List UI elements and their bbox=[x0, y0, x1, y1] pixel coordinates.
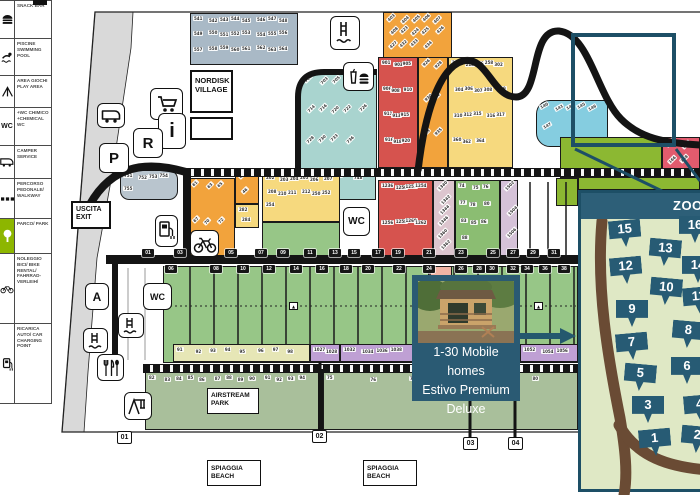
pitch-number-01: 01 bbox=[142, 249, 154, 257]
nordisk-village-label: NORDISK VILLAGE bbox=[190, 70, 233, 113]
snack-bar-icon bbox=[348, 68, 370, 86]
plot-number-tag: 1256 bbox=[381, 220, 394, 225]
wc-label: WC bbox=[150, 292, 165, 302]
zone-orange-top: 4034044054064074084234244254264274324334… bbox=[383, 12, 452, 58]
airstream-park-label: AIRSTREAM PARK bbox=[207, 388, 259, 414]
plot-number-tag: 559 bbox=[219, 45, 229, 50]
zone-purple-strip-1: 10271028 bbox=[310, 344, 340, 362]
plot-number-tag: 82 bbox=[148, 375, 156, 380]
plot-number-tag: 552 bbox=[230, 31, 240, 36]
pitch-number-14: 14 bbox=[290, 265, 302, 273]
park-icon bbox=[0, 219, 15, 253]
snack-bar-icon bbox=[0, 1, 15, 38]
pitch-number-11: 11 bbox=[304, 249, 316, 257]
plot-number-tag: 86 bbox=[480, 219, 488, 224]
plot-number-tag: 87 bbox=[214, 376, 222, 381]
plot-number-tag: 63 bbox=[205, 181, 214, 190]
wc-poi-2: WC bbox=[143, 283, 172, 310]
plot-number-tag: 80 bbox=[483, 201, 491, 206]
plot-number-tag: 755 bbox=[123, 186, 133, 191]
pitch-number-16: 16 bbox=[316, 265, 328, 273]
legend-row: PARCO/ PARK bbox=[0, 219, 51, 254]
chemical-wc-icon: WC bbox=[0, 108, 15, 145]
plot-number-tag: 546 bbox=[256, 17, 266, 22]
mobile-home-info-card: 1-30 Mobile homes Estivo Premium Deluxe bbox=[412, 275, 520, 401]
legend-row: PISCINE SWIMMING POOL bbox=[0, 39, 51, 76]
plot-number-tag: 403 bbox=[386, 12, 397, 23]
zone-red-upper: 901903905906908910911913915916918920 bbox=[378, 57, 418, 168]
plot-number-tag: 92 bbox=[195, 349, 203, 354]
plot-number-tag: 88 bbox=[461, 235, 469, 240]
plot-number-tag: 406 bbox=[421, 12, 432, 23]
plot-number-tag: 754 bbox=[159, 173, 169, 178]
bike-rental-poi bbox=[190, 230, 219, 257]
plot-number-tag: 1254 bbox=[414, 183, 427, 188]
mobile-home-photo bbox=[418, 281, 514, 343]
empty-building-box bbox=[190, 117, 233, 140]
zone-brightgreen-strip bbox=[578, 177, 700, 190]
zone-purple-strip-3: 105210541056 bbox=[520, 344, 578, 362]
plot-number-tag: 360 bbox=[452, 137, 462, 142]
pitch-number-23: 23 bbox=[455, 249, 467, 257]
plot-number-tag: 166 bbox=[667, 154, 678, 165]
parking-label: P bbox=[109, 150, 119, 167]
plot-number-tag: 61 bbox=[190, 179, 199, 188]
card-line-1: 1-30 Mobile homes bbox=[418, 343, 514, 381]
plot-number-tag: 554 bbox=[256, 32, 266, 37]
plot-number-tag: 91 bbox=[176, 347, 184, 352]
plot-number-tag: 714 bbox=[306, 103, 317, 114]
pool-poi-mid bbox=[118, 313, 144, 338]
area-a-label: A bbox=[93, 290, 102, 304]
pitch-number-38: 38 bbox=[558, 265, 570, 273]
plot-number-tag: 931 bbox=[431, 91, 442, 102]
plot-number-tag: 75 bbox=[472, 185, 480, 190]
pitch-number-07: 07 bbox=[255, 249, 267, 257]
inset-title: ZOOM bbox=[673, 198, 700, 213]
plot-number-tag: 563 bbox=[267, 47, 277, 52]
plot-number-tag: 730 bbox=[317, 133, 328, 144]
plot-number-tag: 250 bbox=[311, 191, 321, 196]
plot-number-tag: 284 bbox=[241, 217, 251, 222]
walkway-marker: ▲ bbox=[289, 302, 298, 310]
pitch-number-34: 34 bbox=[521, 265, 533, 273]
uscita-exit-label: USCITA EXIT bbox=[71, 201, 111, 229]
plot-number-tag: 703 bbox=[319, 75, 330, 86]
zone-mauve-strip-1: 134013421344134613601362 bbox=[433, 180, 455, 258]
pitch-number-19: 19 bbox=[392, 249, 404, 257]
zone-red-lower: 12361250125212541256125812601262 bbox=[378, 180, 433, 258]
bike-rental-icon bbox=[0, 254, 15, 323]
plot-number-tag: 432 bbox=[398, 38, 409, 49]
car-charging-icon bbox=[0, 324, 15, 403]
plot-number-tag: 77 bbox=[459, 200, 467, 205]
plot-number-tag: 541 bbox=[193, 16, 203, 21]
plot-number-tag: 86 bbox=[198, 377, 206, 382]
plot-number-tag: 1056 bbox=[556, 348, 569, 353]
plot-number-tag: 701 bbox=[303, 73, 314, 84]
restaurant-poi bbox=[97, 354, 124, 381]
pitch-number-26: 26 bbox=[455, 265, 467, 273]
plot-number-tag: 425 bbox=[420, 25, 431, 36]
plot-number-tag: 548 bbox=[278, 18, 288, 23]
wc-label: WC bbox=[348, 216, 365, 227]
bike-icon bbox=[193, 235, 217, 253]
plot-number-tag: 722 bbox=[342, 103, 353, 114]
pitch-number-29: 29 bbox=[527, 249, 539, 257]
pitch-number-20: 20 bbox=[362, 265, 374, 273]
plot-number-tag: 216 bbox=[451, 60, 461, 65]
pitch-number-08: 08 bbox=[210, 265, 222, 273]
zone-green-mid: 74757677788083858688 bbox=[455, 180, 500, 258]
plot-number-tag: 147 bbox=[541, 121, 552, 131]
ev-charging-poi bbox=[155, 215, 178, 247]
plot-number-tag: 423 bbox=[399, 24, 410, 35]
plot-number-tag: 560 bbox=[230, 47, 240, 52]
plot-number-tag: 557 bbox=[193, 47, 203, 52]
plot-number-tag: 93 bbox=[287, 376, 295, 381]
pitch-number-36: 36 bbox=[539, 265, 551, 273]
plot-number-tag: 736 bbox=[345, 134, 356, 145]
plot-number-tag: 141 bbox=[553, 103, 564, 113]
pitch-number-09: 09 bbox=[277, 249, 289, 257]
plot-number-tag: 304 bbox=[454, 87, 464, 92]
legend-label: RICARICA AUTO/ CAR CHARGING POINT bbox=[15, 324, 51, 403]
plot-number-tag: 140 bbox=[538, 101, 549, 111]
road-marker-04: 04 bbox=[508, 437, 523, 450]
plot-number-tag: 252 bbox=[321, 190, 331, 195]
railway-road-top bbox=[184, 168, 700, 177]
legend-label: +WC CHIMICO +CHEMICAL WC bbox=[15, 108, 51, 145]
plot-number-tag: 716 bbox=[318, 102, 329, 113]
plot-number-tag: 212 bbox=[301, 189, 311, 194]
zone-paleyellow-strip: 9192939495969798 bbox=[173, 344, 310, 362]
plot-number-tag: 70 bbox=[202, 217, 211, 226]
plot-number-tag: 317 bbox=[495, 112, 505, 117]
shopping-cart-icon bbox=[156, 93, 178, 115]
pool-ladder-icon bbox=[122, 317, 140, 335]
info-icon: i bbox=[169, 120, 175, 143]
beach-label-1: SPIAGGIA BEACH bbox=[207, 460, 261, 486]
plot-number-tag: 309 bbox=[496, 86, 506, 91]
plot-number-tag: 94 bbox=[224, 347, 232, 352]
plot-number-tag: 85 bbox=[187, 375, 195, 380]
plot-number-tag: 1262 bbox=[414, 220, 427, 225]
plot-number-tag: 67 bbox=[191, 215, 200, 224]
plot-number-tag: 705 bbox=[331, 74, 342, 85]
pitch-number-12: 12 bbox=[263, 265, 275, 273]
zoom-source-rectangle bbox=[571, 33, 676, 147]
zone-mauve-strip-2: 150215041506 bbox=[500, 180, 518, 258]
plot-number-tag: 1054 bbox=[541, 349, 554, 354]
plot-number-tag: 556 bbox=[278, 30, 288, 35]
plot-number-tag: 908 bbox=[390, 88, 400, 93]
plot-number-tag: 307 bbox=[473, 88, 483, 93]
plot-number-tag: 1362 bbox=[439, 238, 452, 251]
walkway-icon bbox=[0, 179, 15, 218]
pitch-number-27: 27 bbox=[507, 249, 519, 257]
plot-number-tag: 254 bbox=[265, 202, 275, 207]
plot-number-tag: 407 bbox=[431, 14, 442, 25]
legend-label: CAMPER SERVICE bbox=[15, 146, 51, 178]
plot-number-tag: 910 bbox=[403, 87, 413, 92]
reception-label: R bbox=[143, 135, 154, 152]
pitch-number-15: 15 bbox=[348, 249, 360, 257]
plot-number-tag: 92 bbox=[275, 377, 283, 382]
plot-number-tag: 315 bbox=[472, 111, 482, 116]
plot-number-tag: 543 bbox=[219, 17, 229, 22]
plot-number-tag: 203 bbox=[279, 177, 289, 182]
plot-number-tag: 1036 bbox=[376, 348, 389, 353]
plot-number-tag: 1340 bbox=[436, 179, 449, 192]
pitch-number-05: 05 bbox=[225, 249, 237, 257]
plot-number-tag: 93 bbox=[209, 348, 217, 353]
pitch-number-21: 21 bbox=[423, 249, 435, 257]
playground-poi bbox=[124, 392, 152, 420]
plot-number-tag: 65 bbox=[216, 180, 225, 189]
pitch-number-06: 06 bbox=[165, 265, 177, 273]
plot-number-tag: 211 bbox=[287, 190, 297, 195]
plot-number-tag: 1504 bbox=[506, 204, 519, 217]
zone-yellow-main: 2162182562583023043063073083093103123153… bbox=[448, 57, 513, 168]
plot-number-tag: 208 bbox=[267, 189, 277, 194]
plot-number-tag: 1502 bbox=[503, 179, 516, 192]
plot-number-tag: 561 bbox=[241, 46, 251, 51]
plot-number-tag: 426 bbox=[434, 24, 445, 35]
card-line-3: Deluxe bbox=[418, 400, 514, 419]
legend-label: PISCINE SWIMMING POOL bbox=[15, 39, 51, 75]
road-marker-03: 03 bbox=[463, 437, 478, 450]
zone-slate-top: 5415425435445455465475485495505515525535… bbox=[190, 13, 298, 65]
pitch-number-10: 10 bbox=[237, 265, 249, 273]
pitch-number-22: 22 bbox=[393, 265, 405, 273]
plot-number-tag: 310 bbox=[453, 113, 463, 118]
pitch-number-31: 31 bbox=[548, 249, 560, 257]
plot-number-tag: 935 bbox=[433, 126, 444, 137]
zoom-inset-panel: ZOOM 15161312141011987654321 bbox=[578, 190, 700, 492]
plot-number-tag: 80 bbox=[532, 376, 540, 381]
plot-number-tag: 720 bbox=[330, 104, 341, 115]
pitch-number-13: 13 bbox=[329, 249, 341, 257]
pool-ladder-icon bbox=[335, 20, 355, 46]
legend-row: CAMPER SERVICE bbox=[0, 146, 51, 179]
plot-number-tag: 72 bbox=[217, 216, 226, 225]
legend-label: SNACK BAR bbox=[15, 1, 51, 38]
legend-label: PARCO/ PARK bbox=[15, 219, 51, 253]
legend-row: RICARICA AUTO/ CAR CHARGING POINT bbox=[0, 324, 51, 403]
plot-number-tag: 728 bbox=[305, 134, 316, 145]
legend-row: AREA GIOCHI PLAY AREA bbox=[0, 76, 51, 108]
swing-icon bbox=[127, 396, 149, 416]
plot-number-tag: 933 bbox=[421, 127, 432, 138]
plot-number-tag: 753 bbox=[148, 174, 158, 179]
beach-label-2: SPIAGGIA BEACH bbox=[363, 460, 417, 486]
restaurant-cutlery-icon bbox=[102, 358, 120, 378]
plot-number-tag: 210 bbox=[277, 191, 287, 196]
plot-number-tag: 733 bbox=[329, 132, 340, 143]
plot-number-tag: 75 bbox=[326, 375, 334, 380]
snack-bar-poi bbox=[343, 62, 374, 91]
legend-label: NOLEGGIO BICI/ BIKE RENTAL/ FAHRRAD- VER… bbox=[15, 254, 51, 323]
plot-number-tag: 434 bbox=[423, 39, 434, 50]
plot-number-tag: 545 bbox=[241, 18, 251, 23]
plot-number-tag: 1052 bbox=[523, 347, 536, 352]
plot-number-tag: 96 bbox=[257, 348, 265, 353]
pitch-number-30: 30 bbox=[486, 265, 498, 273]
plot-number-tag: 95 bbox=[239, 349, 247, 354]
plot-number-tag: 91 bbox=[264, 375, 272, 380]
plot-number-tag: 256 bbox=[474, 61, 484, 66]
parking-poi: P bbox=[99, 143, 129, 173]
vertical-road-left bbox=[112, 264, 118, 354]
plot-number-tag: 168 bbox=[679, 153, 690, 164]
pool-ladder-icon bbox=[87, 332, 105, 350]
plot-number-tag: 206 bbox=[309, 177, 319, 182]
pitch-number-32: 32 bbox=[507, 265, 519, 273]
plot-number-tag: 555 bbox=[267, 31, 277, 36]
pitch-number-03: 03 bbox=[174, 249, 186, 257]
wc-poi-1: WC bbox=[343, 207, 370, 236]
plot-number-tag: 1028 bbox=[325, 349, 338, 354]
camper-poi bbox=[97, 103, 125, 128]
road-marker-01: 01 bbox=[117, 431, 132, 444]
plot-number-tag: 74 bbox=[458, 183, 466, 188]
pitch-number-18: 18 bbox=[340, 265, 352, 273]
plot-number-tag: 164 bbox=[681, 139, 692, 150]
card-line-2: Estivo Premium bbox=[418, 381, 514, 400]
zone-brightgreen-sliver bbox=[556, 178, 578, 206]
plot-number-tag: 751 bbox=[123, 173, 133, 178]
pitch-number-28: 28 bbox=[473, 265, 485, 273]
area-a-poi: A bbox=[85, 283, 109, 310]
plot-number-tag: 926 bbox=[421, 57, 432, 68]
plot-number-tag: 1032 bbox=[343, 347, 356, 352]
plot-number-tag: 433 bbox=[409, 37, 420, 48]
legend-table: SNACK BARPISCINE SWIMMING POOLAREA GIOCH… bbox=[0, 0, 52, 404]
plot-number-tag: 551 bbox=[219, 32, 229, 37]
plot-number-tag: 1346 bbox=[437, 214, 450, 227]
plot-number-tag: 84 bbox=[175, 376, 183, 381]
plot-number-tag: 83 bbox=[460, 218, 468, 223]
plot-number-tag: 542 bbox=[208, 18, 218, 23]
pitch-number-25: 25 bbox=[487, 249, 499, 257]
legend-label: PERCORSO PEDONALE/ WALKWAY bbox=[15, 179, 51, 218]
plot-number-tag: 549 bbox=[193, 31, 203, 36]
inset-header: ZOOM bbox=[581, 193, 700, 219]
plot-number-tag: 564 bbox=[278, 46, 288, 51]
pitch-number-24: 24 bbox=[423, 265, 435, 273]
plot-number-tag: 83 bbox=[164, 377, 172, 382]
plot-number-tag: 302 bbox=[493, 62, 503, 67]
plot-number-tag: 94 bbox=[298, 375, 306, 380]
plot-number-tag: 76 bbox=[482, 184, 490, 189]
walkway-marker: ▲ bbox=[534, 302, 543, 310]
plot-number-tag: 915 bbox=[400, 112, 410, 117]
plot-number-tag: 901 bbox=[381, 60, 391, 65]
plot-number-tag: 308 bbox=[483, 87, 493, 92]
plot-number-tag: 364 bbox=[475, 138, 485, 143]
zone-slate-blob: 751752753754755 bbox=[120, 170, 178, 200]
camper-service-icon bbox=[0, 146, 15, 178]
plot-number-tag: 726 bbox=[358, 102, 369, 113]
plot-number-tag: 752 bbox=[138, 175, 148, 180]
plot-number-tag: 1034 bbox=[361, 349, 374, 354]
legend-row: NOLEGGIO BICI/ BIKE RENTAL/ FAHRRAD- VER… bbox=[0, 254, 51, 324]
pitch-number-17: 17 bbox=[372, 249, 384, 257]
zone-yellow-small: 282284 bbox=[235, 204, 259, 228]
plot-number-tag: 905 bbox=[402, 61, 412, 66]
plot-number-tag: 1038 bbox=[390, 347, 403, 352]
cut-marker bbox=[33, 0, 47, 5]
plot-number-tag: 1506 bbox=[505, 226, 518, 239]
legend-row: PERCORSO PEDONALE/ WALKWAY bbox=[0, 179, 51, 219]
road-marker-02: 02 bbox=[312, 430, 327, 443]
pool-poi-left bbox=[83, 328, 108, 353]
camper-icon bbox=[101, 108, 121, 124]
plot-number-tag: 562 bbox=[256, 45, 266, 50]
plot-number-tag: 98 bbox=[286, 349, 294, 354]
plot-number-tag: 97 bbox=[272, 347, 280, 352]
legend-row: WC+WC CHIMICO +CHEMICAL WC bbox=[0, 108, 51, 146]
plot-number-tag: 76 bbox=[370, 377, 378, 382]
ev-charging-icon bbox=[158, 219, 175, 243]
zone-purple-strip-2: 1032103410361038 bbox=[340, 344, 413, 362]
plot-number-tag: 920 bbox=[401, 138, 411, 143]
plot-number-tag: 550 bbox=[208, 30, 218, 35]
plot-number-tag: 85 bbox=[470, 220, 478, 225]
zone-orange-strip: 926928930931933935 bbox=[418, 57, 448, 168]
plot-number-tag: 90 bbox=[248, 376, 256, 381]
legend-row: SNACK BAR bbox=[0, 1, 51, 39]
plot-number-tag: 558 bbox=[208, 46, 218, 51]
play-area-icon bbox=[0, 76, 15, 107]
plot-number-tag: 282 bbox=[238, 207, 248, 212]
plot-number-tag: 553 bbox=[241, 30, 251, 35]
reception-poi: R bbox=[133, 128, 163, 158]
pool-poi-top bbox=[330, 16, 360, 50]
plot-number-tag: 89 bbox=[237, 377, 245, 382]
plot-number-tag: 46 bbox=[240, 186, 249, 195]
plot-number-tag: 78 bbox=[469, 202, 477, 207]
plot-number-tag: 88 bbox=[225, 375, 233, 380]
campsite-map: SNACK BARPISCINE SWIMMING POOLAREA GIOCH… bbox=[0, 0, 700, 500]
plot-number-tag: 362 bbox=[462, 139, 472, 144]
plot-number-tag: 1236 bbox=[381, 183, 394, 188]
plot-number-tag: 928 bbox=[433, 59, 444, 70]
plot-number-tag: 544 bbox=[230, 16, 240, 21]
plot-number-tag: 547 bbox=[267, 16, 277, 21]
plot-number-tag: 427 bbox=[388, 39, 399, 50]
swimming-pool-icon bbox=[0, 39, 15, 75]
zone-yellow-band: 202203204205206207208210211212250252254 bbox=[262, 172, 340, 222]
legend-label: AREA GIOCHI PLAY AREA bbox=[15, 76, 51, 107]
